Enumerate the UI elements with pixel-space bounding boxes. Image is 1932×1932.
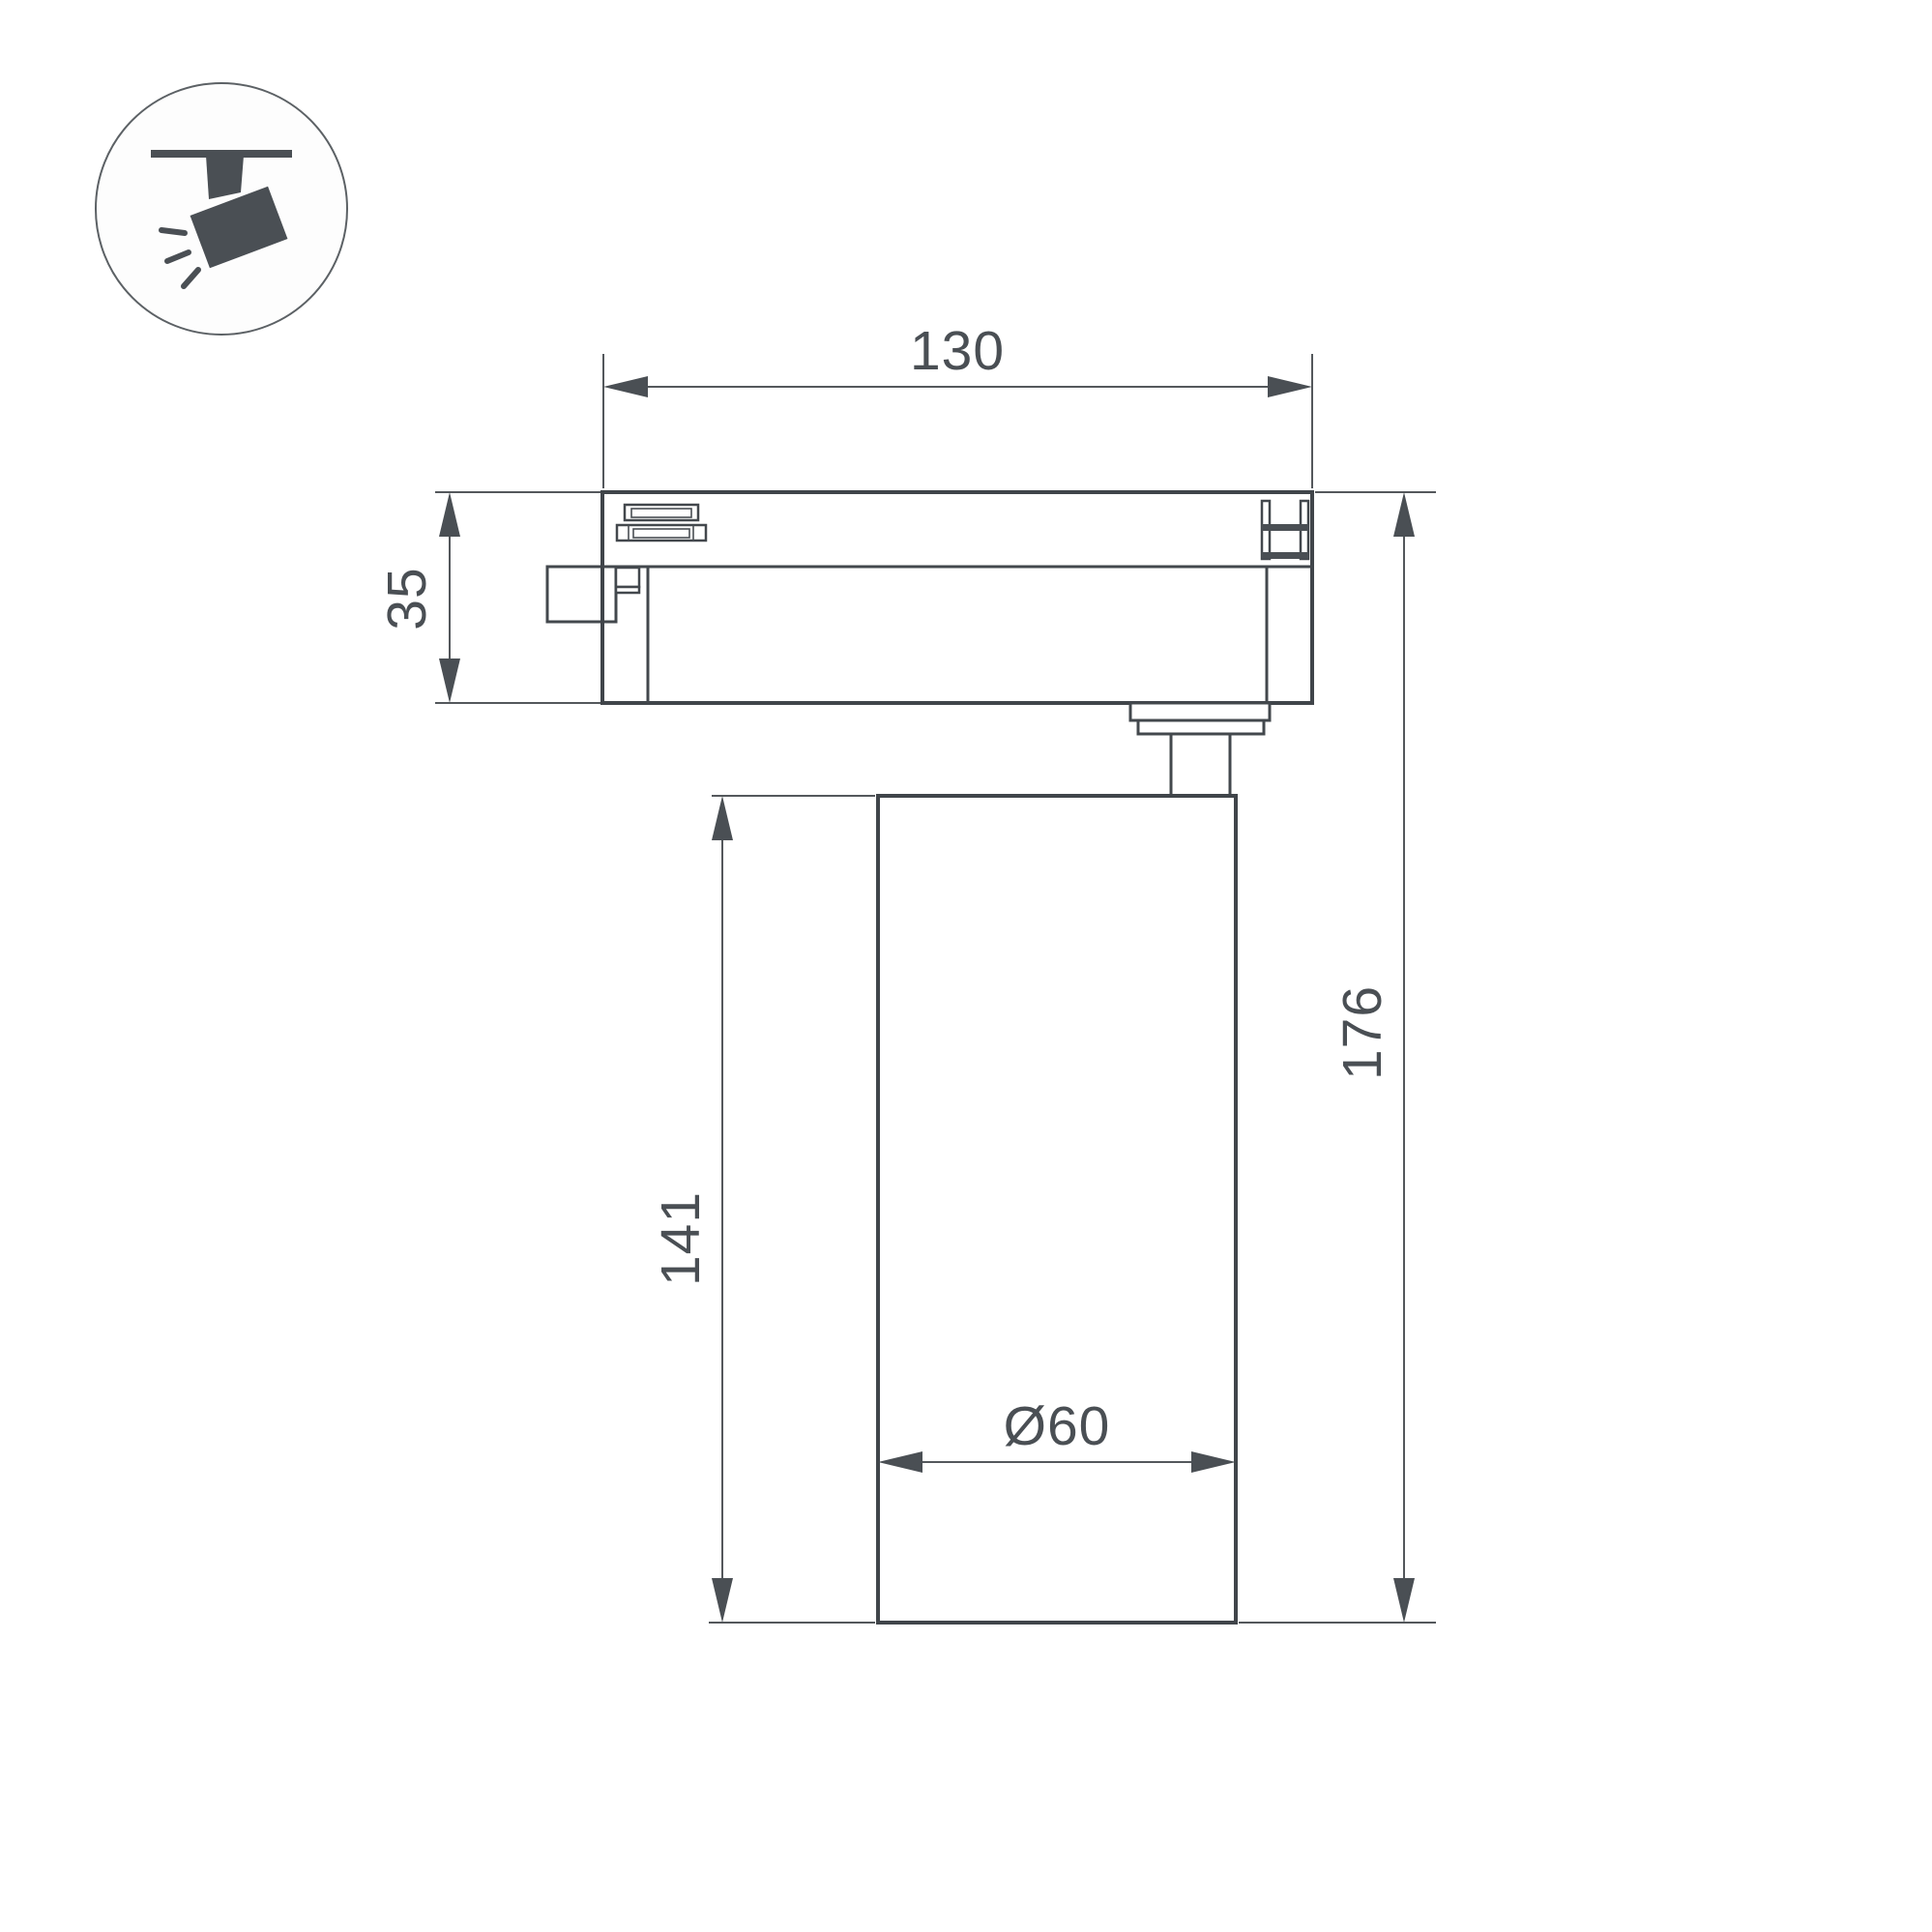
arrow-up (712, 796, 733, 840)
dim-label-141: 141 (650, 1191, 712, 1286)
adapter-latch-box (547, 567, 616, 622)
neck-flange-lower (1138, 720, 1264, 734)
dimension-adapter-width: 130 (603, 320, 1312, 488)
arrow-up (439, 492, 460, 537)
swivel-neck (1130, 703, 1270, 796)
track-adapter (547, 492, 1312, 703)
dim-label-d60: Ø60 (1004, 1395, 1111, 1457)
lamp-cylinder (878, 796, 1236, 1623)
arrow-up (1393, 492, 1415, 537)
icon-ray-1 (161, 230, 185, 233)
arrow-right (1268, 376, 1312, 397)
adapter-fill (602, 492, 1312, 703)
adapter-latch-tab (616, 568, 639, 587)
adapter-clip-middle-rung (1262, 524, 1308, 531)
dim-label-35: 35 (376, 567, 438, 629)
arrow-down (439, 659, 460, 703)
technical-drawing-canvas: 130 35 141 176 Ø60 (0, 0, 1932, 1932)
arrow-down (1393, 1578, 1415, 1623)
arrow-left (603, 376, 648, 397)
dim-label-176: 176 (1332, 985, 1393, 1080)
drawing-page: 130 35 141 176 Ø60 (0, 0, 1932, 1932)
arrow-down (712, 1578, 733, 1623)
track-spotlight-icon (96, 83, 347, 335)
dim-label-130: 130 (910, 320, 1005, 382)
icon-stem (206, 156, 244, 199)
neck-flange-upper (1130, 703, 1270, 720)
dimension-body-height: 141 (650, 796, 875, 1623)
adapter-clip-bottom-rung (1262, 552, 1308, 559)
adapter-latch-tab-lip (616, 587, 639, 593)
